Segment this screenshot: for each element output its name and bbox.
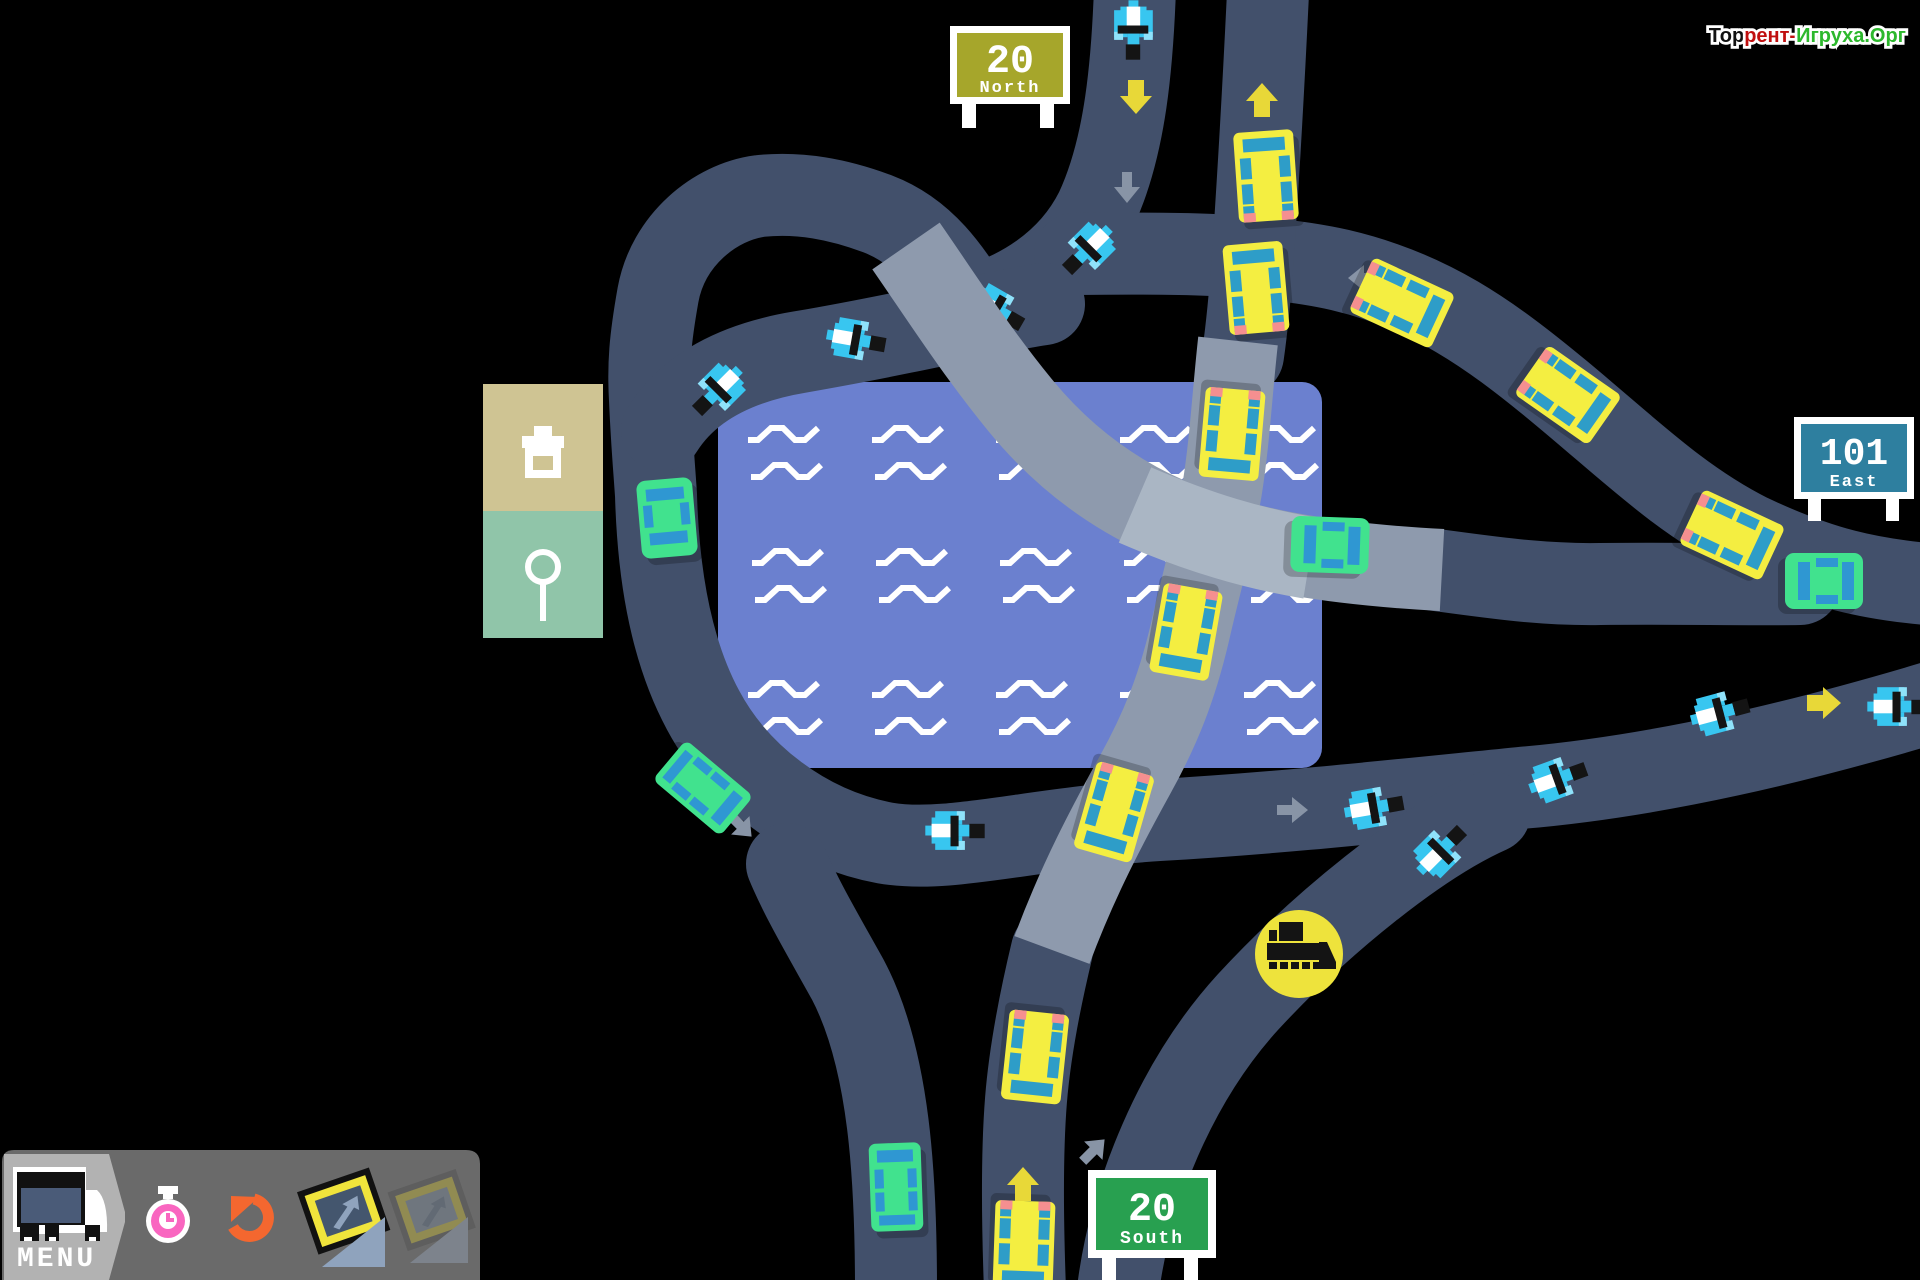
svg-text:20: 20	[1128, 1188, 1176, 1233]
svg-text:North: North	[979, 79, 1040, 98]
svg-text:101: 101	[1820, 433, 1888, 476]
svg-text:MENU: MENU	[17, 1244, 96, 1275]
svg-text:South: South	[1120, 1229, 1184, 1249]
svg-text:East: East	[1830, 473, 1879, 492]
svg-text:Торрент-Игруха.Орг: Торрент-Игруха.Орг	[1709, 25, 1906, 47]
